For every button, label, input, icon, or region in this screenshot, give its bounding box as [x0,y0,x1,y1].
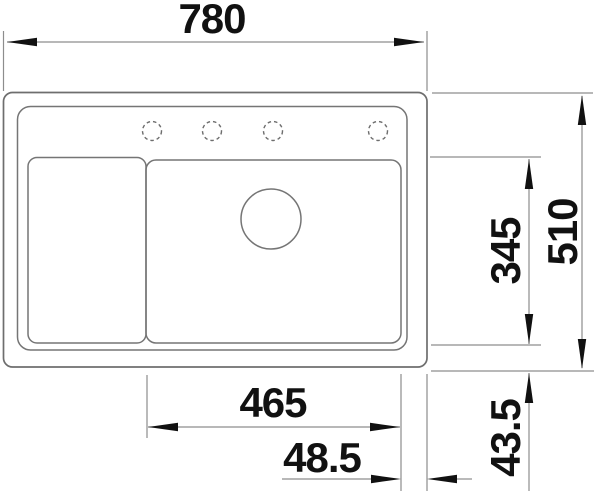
tap-hole-icon [203,122,222,141]
dim-label-780: 780 [178,0,245,42]
tap-hole-icon [143,122,162,141]
dim-label-465: 465 [239,379,307,426]
arrowhead-up-icon [578,95,586,125]
arrowhead-left-icon [427,475,457,483]
arrowhead-up-icon [525,373,533,403]
dim-label-48-5: 48.5 [283,434,361,481]
sink-outer-edge [4,93,428,368]
arrowhead-right-icon [371,475,401,483]
dim-label-345: 345 [482,217,529,285]
sink-dimension-drawing: 780 510 345 43.5 [0,0,600,492]
dimension-width-total: 780 [4,0,428,91]
arrowhead-right-icon [370,423,400,431]
arrowhead-up-icon [525,159,533,189]
arrowhead-left-icon [148,423,178,431]
sink-left-bowl [28,158,146,344]
dimension-bowl-width: 465 [147,374,401,491]
dimension-edge-front: 43.5 [482,373,533,491]
dim-label-510: 510 [539,198,586,265]
arrowhead-right-icon [394,38,424,46]
sink-right-bowl [146,160,401,343]
sink-inner-rim [18,107,408,351]
drain-circle [241,189,301,249]
tap-hole-icon [264,122,283,141]
dimension-bowl-depth: 345 [430,157,541,345]
dimension-edge-right: 48.5 [282,374,472,491]
tap-hole-icon [369,122,388,141]
dim-label-43-5: 43.5 [482,398,529,476]
arrowhead-down-icon [578,339,586,369]
arrowhead-down-icon [525,314,533,344]
arrowhead-left-icon [7,38,37,46]
drawing-svg: 780 510 345 43.5 [0,0,600,492]
sink-outline-group [4,93,428,368]
